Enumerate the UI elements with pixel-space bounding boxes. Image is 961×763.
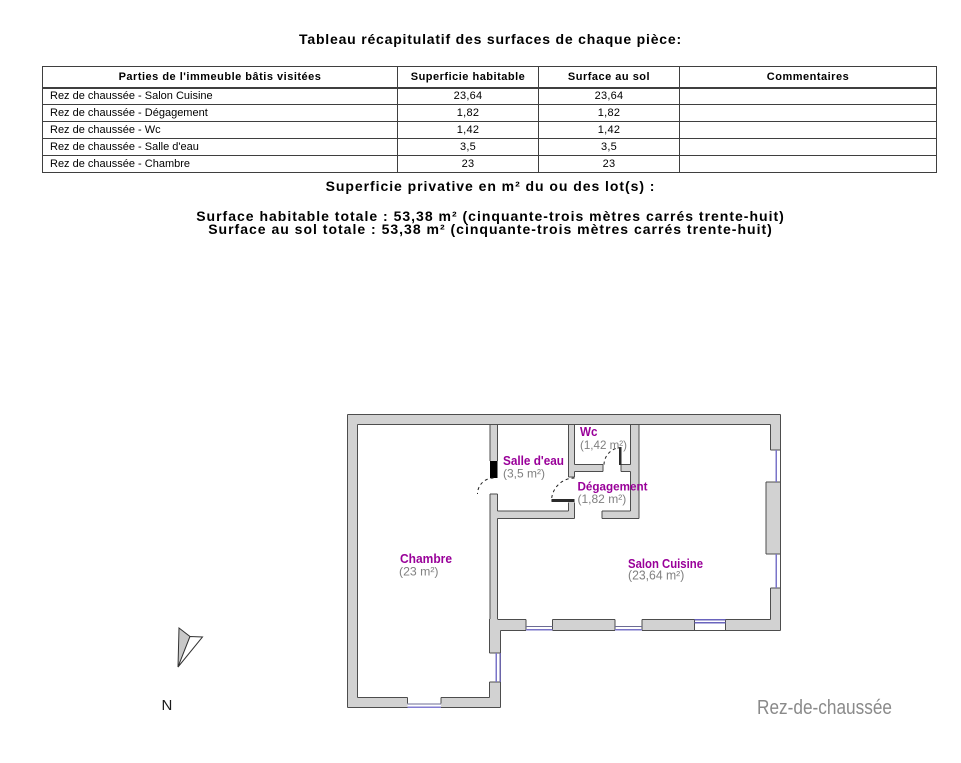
svg-text:(1,82 m²): (1,82 m²) — [578, 492, 627, 506]
svg-text:N: N — [162, 697, 173, 714]
svg-text:(3,5 m²): (3,5 m²) — [503, 467, 545, 481]
svg-text:Wc: Wc — [580, 425, 598, 439]
svg-text:(23,64 m²): (23,64 m²) — [628, 569, 684, 583]
svg-text:(1,42 m²): (1,42 m²) — [580, 438, 627, 452]
svg-text:Rez-de-chaussée: Rez-de-chaussée — [757, 696, 892, 719]
svg-text:(23 m²): (23 m²) — [399, 565, 439, 579]
